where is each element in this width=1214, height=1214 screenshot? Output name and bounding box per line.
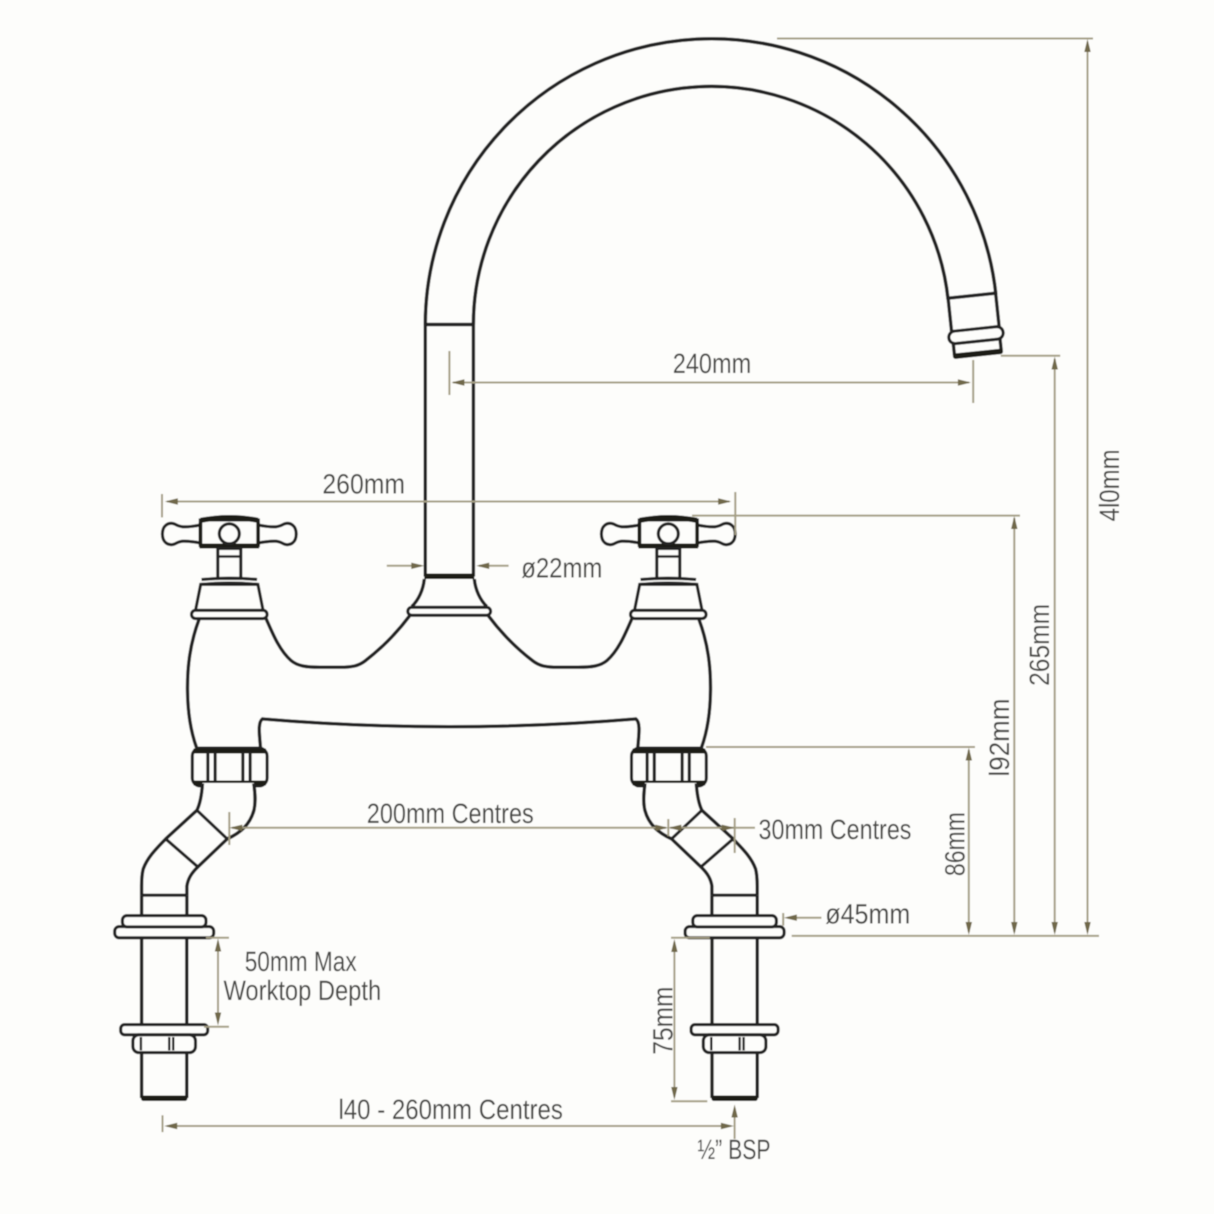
svg-text:50mm Max: 50mm Max (245, 946, 357, 977)
svg-text:265mm: 265mm (1024, 604, 1055, 686)
svg-text:4l0mm: 4l0mm (1094, 449, 1125, 521)
svg-text:ø45mm: ø45mm (825, 899, 910, 930)
svg-text:240mm: 240mm (673, 348, 752, 379)
svg-text:l92mm: l92mm (984, 698, 1015, 776)
svg-text:260mm: 260mm (322, 469, 405, 500)
svg-text:l40 - 260mm Centres: l40 - 260mm Centres (338, 1094, 563, 1125)
svg-text:86mm: 86mm (940, 812, 971, 876)
svg-text:75mm: 75mm (647, 987, 678, 1055)
svg-text:ø22mm: ø22mm (521, 553, 602, 584)
svg-text:½” BSP: ½” BSP (698, 1134, 771, 1165)
svg-text:30mm Centres: 30mm Centres (759, 814, 912, 845)
svg-text:Worktop Depth: Worktop Depth (223, 975, 381, 1006)
svg-text:200mm Centres: 200mm Centres (367, 798, 534, 829)
